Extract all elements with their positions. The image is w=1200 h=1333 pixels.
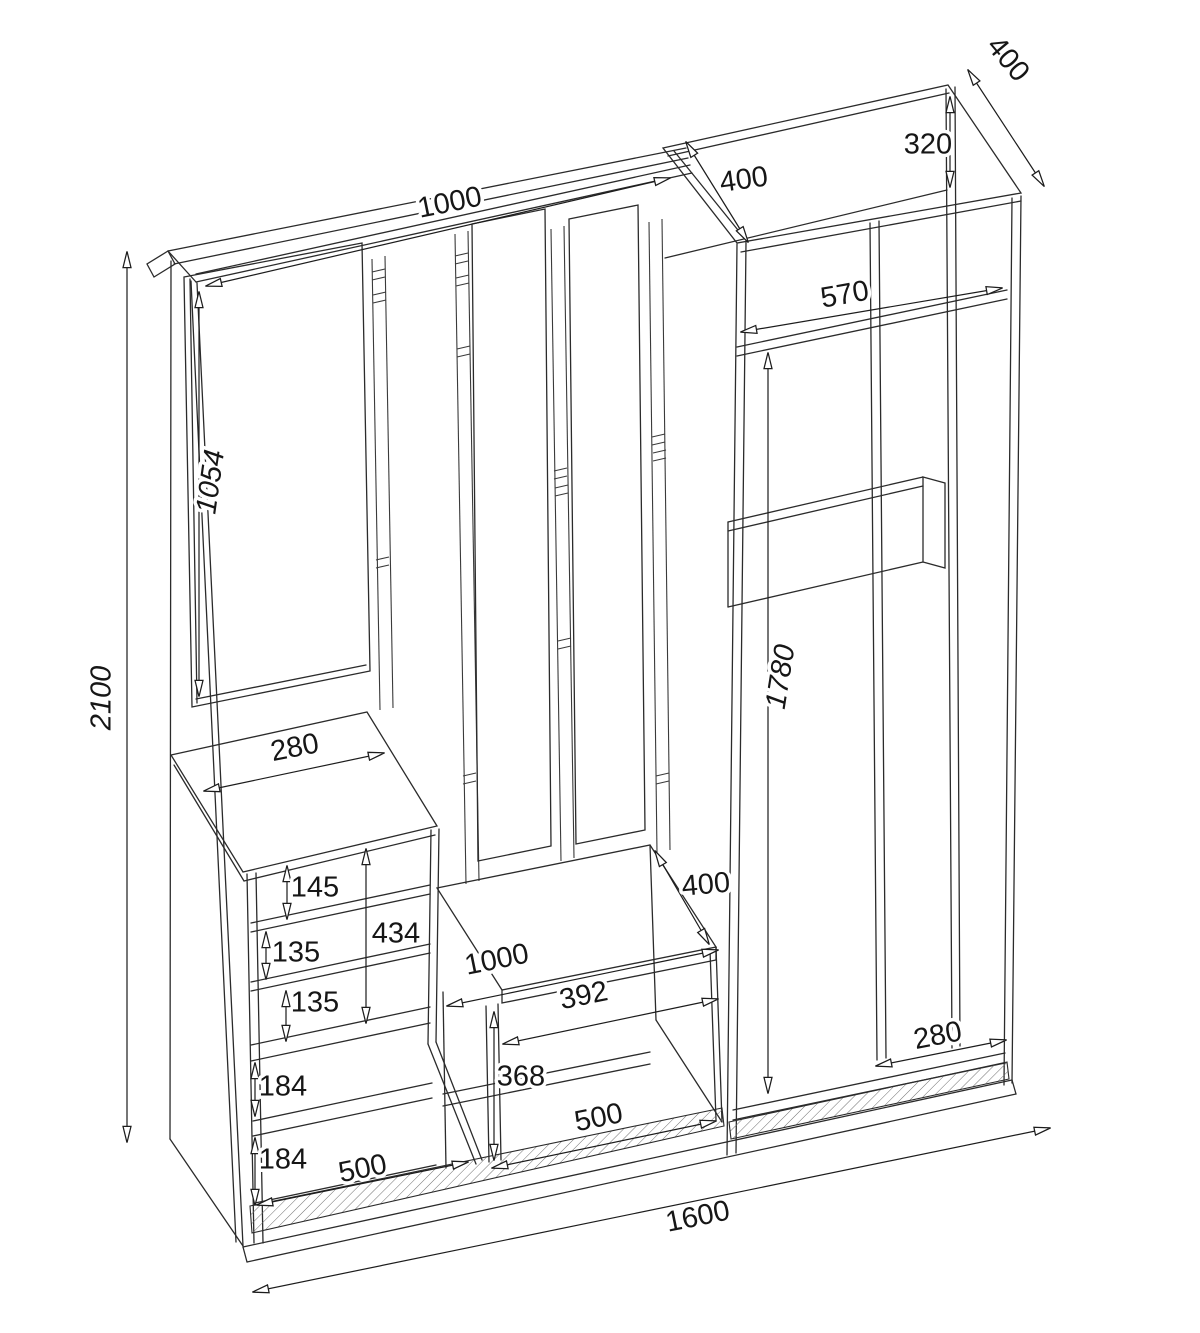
dim-cabinet-niche-2: 135 [272,937,320,969]
dim-drawer-1: 184 [259,1071,307,1103]
dim-cabinet-niche-1: 145 [291,872,339,904]
dim-wardrobe-top-section-height: 320 [904,129,952,161]
dim-top-shelf-width: 1000 [415,181,485,225]
dim-wardrobe-inner-width: 570 [818,275,871,315]
dim-bench-depth: 400 [680,867,731,903]
dim-cabinet-top-depth: 280 [268,727,322,768]
furniture-dimension-drawing: 1000 2100 1054 400 400 320 570 1780 280 … [0,0,1200,1333]
drawing-canvas: 1000 2100 1054 400 400 320 570 1780 280 … [0,0,1200,1333]
wall-slat-boards [472,205,645,861]
dim-wardrobe-inner-height: 1780 [760,642,802,711]
wardrobe [663,85,1021,1155]
lower-cabinet [171,712,482,1243]
dim-overall-width: 1600 [663,1195,733,1239]
dim-bench-inner-height: 368 [497,1061,545,1093]
dim-drawer-2: 184 [259,1144,307,1176]
dim-cabinet-niche-3: 135 [291,987,339,1019]
dim-mirror-height: 1054 [190,448,231,516]
dim-overall-height: 2100 [86,666,118,732]
left-side-panel [170,261,243,1246]
dim-wardrobe-right-depth: 400 [980,30,1036,88]
dim-cabinet-open-total: 434 [372,918,420,950]
wall-slat-rails [372,219,670,884]
dimension-labels: 1000 2100 1054 400 400 320 570 1780 280 … [86,30,1036,1238]
dim-wardrobe-top-depth: 400 [718,160,770,198]
